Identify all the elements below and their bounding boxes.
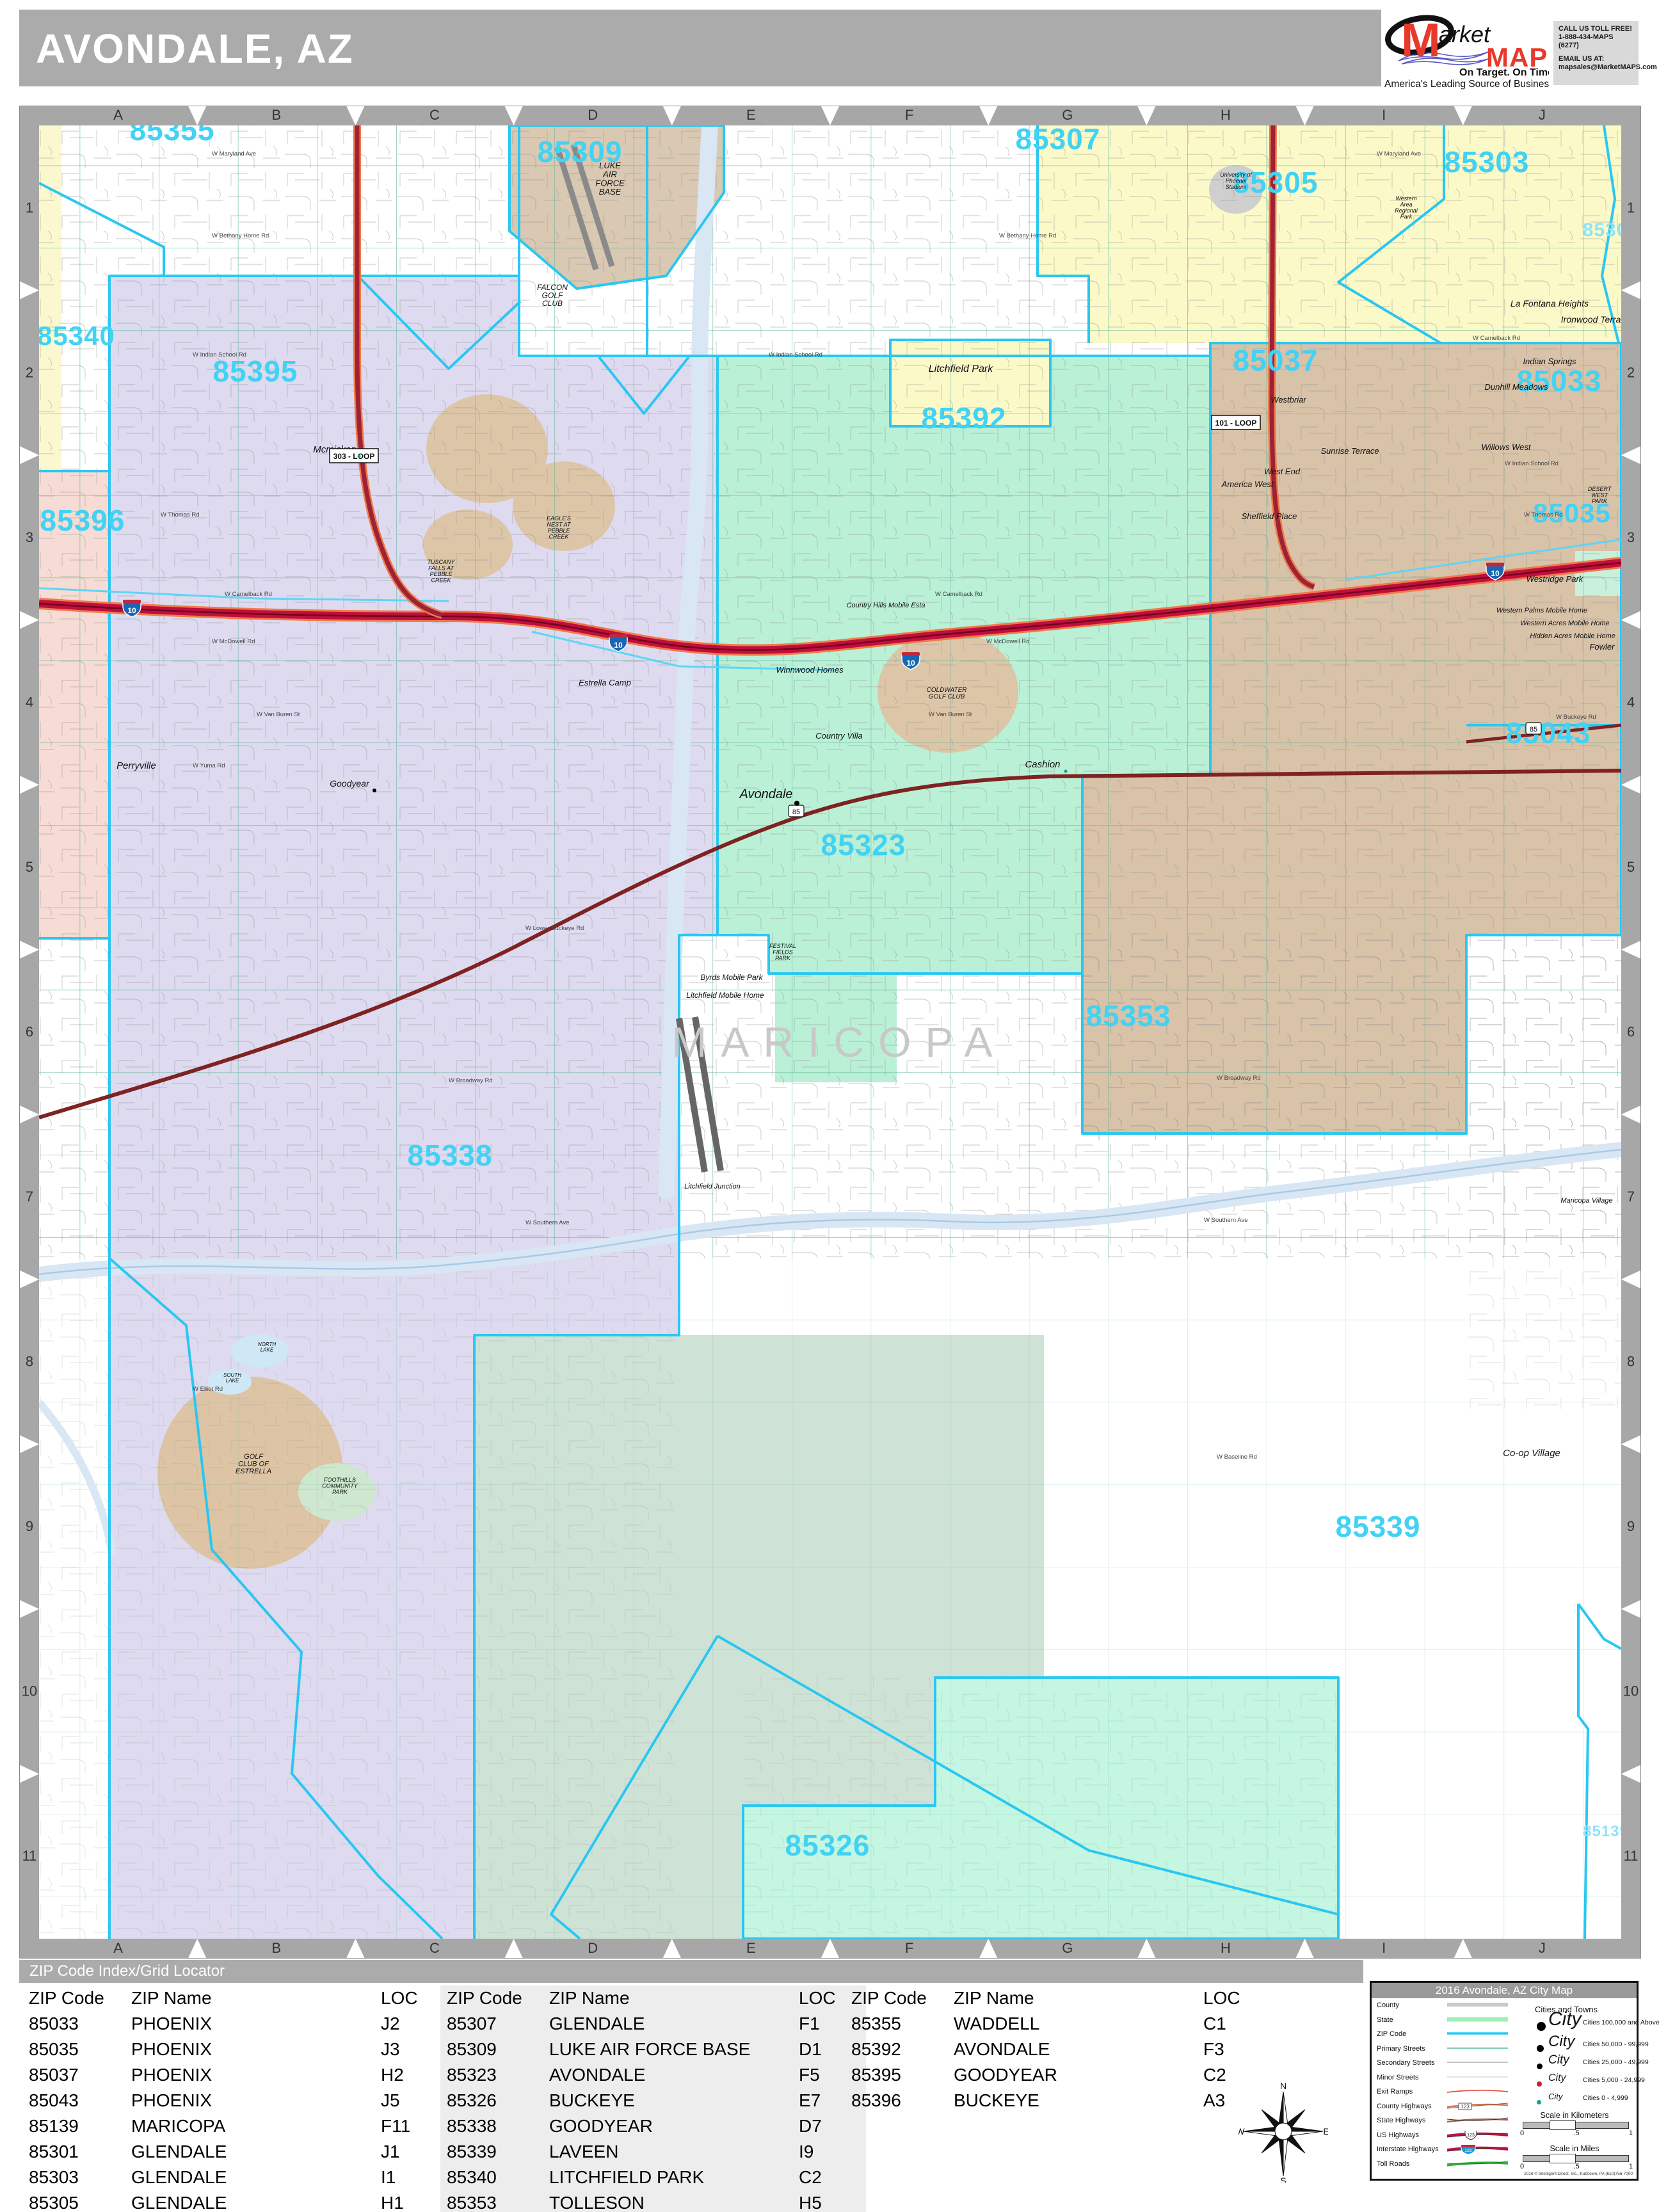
zip-table-cell-code: 85340: [447, 2165, 549, 2190]
contact-line2: 1-888-434-MAPS (6277): [1559, 33, 1633, 50]
page-title: AVONDALE, AZ: [36, 25, 354, 72]
zip-label-85353: 85353: [1086, 999, 1171, 1032]
place-label: Country Hills Mobile Esta: [847, 602, 926, 609]
city-size-dot: [1537, 2045, 1544, 2052]
city-dot: [794, 801, 799, 806]
place-label: Estrella Camp: [579, 678, 631, 687]
zip-label-85395: 85395: [213, 355, 298, 388]
place-label: Goodyear: [330, 778, 370, 789]
city-size-desc: Cities 50,000 - 99,999: [1583, 2040, 1649, 2048]
legend-item-minor: Minor Streets: [1377, 2074, 1418, 2081]
road-label: W Camelback Rd: [1473, 335, 1520, 342]
grid-number-right: 10: [1623, 1683, 1639, 1699]
county-label-group: MARICOPA: [671, 1018, 1006, 1066]
road-label: W Buckeye Rd: [1556, 714, 1596, 721]
grid-number-left: 11: [22, 1848, 37, 1864]
grid-number-right: 1: [1627, 200, 1635, 216]
zip-table-header-loc: LOC: [799, 1985, 860, 2011]
zip-table-cell-code: 85339: [447, 2139, 549, 2165]
road-label: W Broadway Rd: [449, 1077, 493, 1084]
grid-letter: E: [746, 1940, 756, 1956]
road-label: W Southern Ave: [1204, 1217, 1247, 1224]
zip-table-cell-loc: H2: [381, 2062, 442, 2088]
scale-bar: [1523, 2122, 1629, 2129]
road-label: W Maryland Ave: [212, 150, 256, 157]
legend-item-sthwy: State Highways: [1377, 2117, 1425, 2124]
city-size-desc: Cities 100,000 and Above: [1583, 2019, 1659, 2026]
zip-table-cell-code: 85392: [851, 2037, 954, 2062]
zip-table-cell-code: 85033: [29, 2011, 131, 2037]
grid-number-left: 6: [26, 1024, 33, 1040]
zip-label-85340: 85340: [37, 321, 115, 351]
svg-text:123: 123: [1465, 2149, 1472, 2153]
place-label: Indian Springs: [1523, 357, 1576, 366]
logo-arket: arket: [1439, 21, 1491, 47]
svg-text:10: 10: [1491, 569, 1500, 578]
grid-number-left: 9: [26, 1518, 33, 1534]
zip-table-cell-name: GOODYEAR: [954, 2062, 1203, 2088]
zip-table-cell-code: 85353: [447, 2190, 549, 2212]
grid-letter: F: [905, 107, 913, 123]
scale-ticks: 0.51: [1520, 2163, 1633, 2170]
zip-table-header-zip-code: ZIP Code: [29, 1985, 131, 2011]
zip-table-group-3: ZIP CodeZIP NameLOC85355WADDELLC185392AV…: [851, 1985, 1264, 2113]
zip-table-cell-name: PHOENIX: [131, 2011, 381, 2037]
contact-line4: mapsales@MarketMAPS.com: [1559, 63, 1633, 72]
county-label: MARICOPA: [671, 1018, 1006, 1066]
road-label: W Van Buren St: [257, 711, 300, 718]
place-label: Ironwood Terrace: [1561, 314, 1631, 325]
zip-table-cell-name: WADDELL: [954, 2011, 1203, 2037]
road-label: W McDowell Rd: [986, 638, 1030, 645]
legend-item-exit: Exit Ramps: [1377, 2088, 1413, 2096]
place-label: SOUTHLAKE: [223, 1372, 241, 1383]
contact-line1: CALL US TOLL FREE!: [1559, 25, 1633, 33]
zip-table-header-zip-name: ZIP Name: [549, 1985, 799, 2011]
zip-table-cell-name: TOLLESON: [549, 2190, 799, 2212]
legend-item-zip: ZIP Code: [1377, 2030, 1406, 2038]
legend-item-ushwy: US Highways: [1377, 2131, 1419, 2139]
svg-text:10: 10: [906, 659, 915, 668]
zip-table-cell-name: BUCKEYE: [549, 2088, 799, 2113]
zip-table-header-zip-code: ZIP Code: [851, 1985, 954, 2011]
grid-number-right: 4: [1627, 694, 1635, 710]
contact-line3: EMAIL US AT:: [1559, 55, 1633, 63]
zip-table-cell-loc: J3: [381, 2037, 442, 2062]
grid-number-right: 3: [1627, 529, 1635, 545]
place-label: Co-op Village: [1503, 1448, 1560, 1459]
compass-w: W: [1238, 2126, 1245, 2136]
place-label: Country Villa: [815, 731, 862, 741]
scale-bar: [1523, 2155, 1629, 2162]
zip-label-85323: 85323: [821, 828, 906, 862]
road-label: W Maryland Ave: [1377, 150, 1421, 157]
place-label: Dunhill Meadows: [1485, 382, 1548, 392]
zip-table-cell-loc: C1: [1203, 2011, 1264, 2037]
zip-table-cell-loc: D1: [799, 2037, 860, 2062]
place-label: Westridge Park: [1527, 574, 1584, 584]
zip-label-85392: 85392: [922, 401, 1007, 435]
place-label: NORTHLAKE: [258, 1342, 276, 1352]
city-size-dot: [1537, 2064, 1543, 2069]
legend-item-county: County: [1377, 2001, 1399, 2009]
grid-letter: B: [271, 107, 281, 123]
svg-text:10: 10: [127, 606, 136, 615]
place-label: Fowler: [1589, 642, 1615, 652]
zip-table-cell-name: PHOENIX: [131, 2062, 381, 2088]
zip-table-cell-code: 85309: [447, 2037, 549, 2062]
index-bar: ZIP Code Index/Grid Locator: [19, 1960, 1363, 1983]
zip-table-cell-loc: F11: [381, 2113, 442, 2139]
city-size-sample: City: [1548, 2072, 1566, 2084]
loop-plate: 101 - LOOP: [1212, 415, 1260, 429]
zip-label-85043: 85043: [1506, 716, 1591, 749]
city-dot: [358, 455, 361, 458]
road-label: W Indian School Rd: [1505, 460, 1559, 467]
logo-graphic: M arket MAPS On Target. On Time. America…: [1382, 6, 1549, 96]
zip-table-cell-loc: J2: [381, 2011, 442, 2037]
place-label: Avondale: [739, 787, 792, 801]
logo-m: M: [1401, 13, 1441, 67]
zip-table-cell-loc: F5: [799, 2062, 860, 2088]
place-label: West End: [1264, 467, 1301, 476]
contact-box: CALL US TOLL FREE! 1-888-434-MAPS (6277)…: [1553, 21, 1639, 85]
zip-table-cell-code: 85303: [29, 2165, 131, 2190]
road-label: W Baseline Rd: [1217, 1454, 1257, 1461]
road-label: W Elliot Rd: [193, 1386, 223, 1393]
grid-letter: C: [429, 107, 440, 123]
place-label: Byrds Mobile Park: [700, 973, 763, 982]
legend-title: 2016 Avondale, AZ City Map: [1372, 1983, 1637, 1998]
zip-table-cell-name: GLENDALE: [131, 2165, 381, 2190]
place-label: Sunrise Terrace: [1320, 446, 1379, 456]
grid-number-right: 9: [1627, 1518, 1635, 1534]
city-size-sample: City: [1548, 2053, 1569, 2067]
legend-copyright: 2016 © Intelligent Direct, Inc., Kutztow…: [1524, 2172, 1633, 2176]
road-label: W Bethany Home Rd: [999, 232, 1056, 239]
city-size-desc: Cities 0 - 4,999: [1583, 2094, 1628, 2102]
zip-table-cell-code: 85338: [447, 2113, 549, 2139]
legend-item-primary: Primary Streets: [1377, 2045, 1425, 2053]
legend-item-toll: Toll Roads: [1377, 2160, 1409, 2168]
place-label: Western Palms Mobile Home: [1496, 607, 1587, 614]
grid-number-left: 7: [26, 1189, 33, 1205]
zip-table-cell-name: GOODYEAR: [549, 2113, 799, 2139]
zip-label-85339: 85339: [1336, 1510, 1421, 1543]
us-85-shield: 85: [1526, 723, 1541, 734]
grid-number-right: 6: [1627, 1024, 1635, 1040]
road-label: W Yuma Rd: [193, 762, 225, 769]
zip-label-85307: 85307: [1016, 122, 1101, 156]
grid-letter: G: [1062, 107, 1073, 123]
zip-table-group-1: ZIP CodeZIP NameLOC85033PHOENIXJ285035PH…: [29, 1985, 442, 2212]
grid-letter: G: [1062, 1940, 1073, 1956]
zip-label-85303: 85303: [1445, 145, 1530, 179]
grid-letter: H: [1221, 1940, 1231, 1956]
city-size-sample: City: [1548, 2033, 1575, 2051]
zip-table-cell-loc: I1: [381, 2165, 442, 2190]
zip-table-cell-code: 85139: [29, 2113, 131, 2139]
grid-letter: D: [588, 1940, 598, 1956]
zip-table-cell-code: 85355: [851, 2011, 954, 2037]
place-label: Maricopa Village: [1560, 1197, 1612, 1205]
zip-table-cell-name: GLENDALE: [549, 2011, 799, 2037]
road-label: W Broadway Rd: [1217, 1075, 1261, 1082]
zip-table-cell-loc: H1: [381, 2190, 442, 2212]
place-label: Western Acres Mobile Home: [1520, 620, 1609, 627]
zip-table-cell-code: 85323: [447, 2062, 549, 2088]
grid-number-left: 3: [26, 529, 33, 545]
road-label: W Indian School Rd: [193, 351, 246, 358]
grid-letter: E: [746, 107, 756, 123]
place-label: Sheffield Place: [1242, 511, 1297, 521]
legend-item-inthwy: Interstate Highways: [1377, 2145, 1439, 2153]
zip-table-cell-loc: D7: [799, 2113, 860, 2139]
legend-box: 2016 Avondale, AZ City Map CountyStateZI…: [1370, 1981, 1639, 2181]
legend-item-secondary: Secondary Streets: [1377, 2059, 1435, 2067]
city-size-desc: Cities 5,000 - 24,999: [1583, 2076, 1645, 2084]
scale-title: Scale in Miles: [1520, 2144, 1629, 2153]
grid-letter: A: [113, 1940, 123, 1956]
zip-table-cell-name: BUCKEYE: [954, 2088, 1203, 2113]
scale-title: Scale in Kilometers: [1520, 2111, 1629, 2120]
city-size-dot: [1537, 2081, 1542, 2087]
svg-text:85: 85: [792, 808, 800, 816]
zip-label-85033: 85033: [1517, 364, 1602, 397]
road-label: W Indian School Rd: [769, 351, 822, 358]
page: { "header": { "title": "AVONDALE, AZ", "…: [0, 0, 1659, 2212]
header-bar: AVONDALE, AZ: [19, 10, 1381, 86]
place-label: Willows West: [1482, 442, 1532, 452]
place-label: LUKEAIRFORCEBASE: [595, 161, 625, 196]
zip-label-85326: 85326: [785, 1829, 870, 1862]
place-label: La Fontana Heights: [1511, 298, 1589, 309]
zip-table-cell-name: AVONDALE: [954, 2037, 1203, 2062]
grid-number-right: 7: [1627, 1189, 1635, 1205]
place-label: America West: [1221, 479, 1274, 489]
zip-table-header-loc: LOC: [1203, 1985, 1264, 2011]
zip-table-group-2: ZIP CodeZIP NameLOC85307GLENDALEF185309L…: [440, 1985, 866, 2212]
zip-label-85037: 85037: [1233, 344, 1318, 377]
logo-tagline: On Target. On Time.: [1459, 67, 1549, 78]
compass-s: S: [1280, 2176, 1286, 2183]
index-bar-title: ZIP Code Index/Grid Locator: [19, 1960, 225, 1983]
loop-plate: 303 - LOOP: [330, 449, 378, 463]
zip-table-cell-name: LITCHFIELD PARK: [549, 2165, 799, 2190]
zip-table-cell-name: GLENDALE: [131, 2190, 381, 2212]
map-area: MARICOPA 8535585309853078530585303853018…: [19, 106, 1641, 1959]
zip-table-cell-code: 85301: [29, 2139, 131, 2165]
grid-number-left: 1: [26, 200, 33, 216]
grid-number-left: 10: [22, 1683, 37, 1699]
legend-item-state: State: [1377, 2016, 1393, 2024]
compass-rose: N E S W: [1238, 2080, 1328, 2183]
place-label: Litchfield Mobile Home: [686, 991, 764, 1000]
marketmaps-logo: M arket MAPS On Target. On Time. America…: [1382, 6, 1549, 96]
grid-number-right: 8: [1627, 1354, 1635, 1370]
road-label: W Southern Ave: [525, 1219, 569, 1226]
svg-text:10: 10: [614, 641, 623, 650]
grid-letter: I: [1382, 1940, 1386, 1956]
grid-letter: I: [1382, 107, 1386, 123]
place-label: Westbriar: [1270, 395, 1306, 405]
grid-letter: B: [271, 1940, 281, 1956]
svg-text:101 - LOOP: 101 - LOOP: [1215, 419, 1257, 428]
zip-label-85338: 85338: [408, 1139, 493, 1172]
zip-table-cell-name: PHOENIX: [131, 2088, 381, 2113]
zip-table-cell-name: GLENDALE: [131, 2139, 381, 2165]
zip-table-cell-code: 85037: [29, 2062, 131, 2088]
place-label: Hidden Acres Mobile Home: [1530, 632, 1615, 640]
zip-table-cell-code: 85307: [447, 2011, 549, 2037]
zip-table-cell-code: 85395: [851, 2062, 954, 2088]
zip-table-cell-name: LAVEEN: [549, 2139, 799, 2165]
zip-table-cell-code: 85035: [29, 2037, 131, 2062]
compass-n: N: [1280, 2081, 1286, 2091]
grid-letter: J: [1539, 1940, 1546, 1956]
zip-table-cell-loc: F1: [799, 2011, 860, 2037]
zip-table-header-zip-name: ZIP Name: [954, 1985, 1203, 2011]
zip-table-cell-loc: E7: [799, 2088, 860, 2113]
city-size-sample: City: [1548, 2092, 1562, 2101]
road-label: W Van Buren St: [929, 711, 972, 718]
svg-text:303 - LOOP: 303 - LOOP: [333, 452, 375, 461]
svg-text:85: 85: [1530, 726, 1537, 733]
logo-subline: America's Leading Source of Business Map…: [1384, 79, 1549, 90]
place-label: Litchfield Junction: [684, 1183, 740, 1190]
road-label: W Bethany Home Rd: [212, 232, 269, 239]
svg-text:123: 123: [1461, 2104, 1470, 2110]
zip-table-cell-name: MARICOPA: [131, 2113, 381, 2139]
grid-letter: D: [588, 107, 598, 123]
zip-table-cell-code: 85043: [29, 2088, 131, 2113]
grid-letter: C: [429, 1940, 440, 1956]
zip-table-cell-name: LUKE AIR FORCE BASE: [549, 2037, 799, 2062]
zip-table-cell-code: 85326: [447, 2088, 549, 2113]
zip-table-cell-code: 85396: [851, 2088, 954, 2113]
scale-ticks: 0.51: [1520, 2129, 1633, 2137]
grid-number-right: 2: [1627, 364, 1635, 380]
grid-letter: F: [905, 1940, 913, 1956]
place-label: Winnwood Homes: [776, 665, 844, 675]
place-label: Perryville: [116, 760, 156, 771]
zip-table-header-loc: LOC: [381, 1985, 442, 2011]
zip-table-header-zip-name: ZIP Name: [131, 1985, 381, 2011]
zip-table-cell-loc: H5: [799, 2190, 860, 2212]
city-size-desc: Cities 25,000 - 49,999: [1583, 2058, 1649, 2066]
road-label: W Camelback Rd: [225, 591, 272, 598]
grid-letter: H: [1221, 107, 1231, 123]
grid-number-left: 2: [26, 364, 33, 380]
city-dot: [373, 789, 376, 792]
place-label: Litchfield Park: [929, 364, 993, 374]
place-label: Cashion: [1025, 759, 1060, 770]
grid-number-right: 5: [1627, 859, 1635, 875]
road-label: W Thomas Rd: [161, 511, 200, 518]
svg-text:123: 123: [1467, 2133, 1475, 2138]
city-dot: [1064, 770, 1068, 773]
grid-letter: J: [1539, 107, 1546, 123]
zip-label-85396: 85396: [40, 504, 125, 537]
road-label: W McDowell Rd: [212, 638, 255, 645]
zip-table-cell-name: AVONDALE: [549, 2062, 799, 2088]
grid-number-left: 4: [26, 694, 33, 710]
city-size-dot: [1537, 2100, 1541, 2104]
map-svg: MARICOPA 8535585309853078530585303853018…: [20, 106, 1640, 1958]
zip-table-header-zip-code: ZIP Code: [447, 1985, 549, 2011]
zip-table-cell-loc: I9: [799, 2139, 860, 2165]
city-size-sample: City: [1548, 2008, 1582, 2030]
zip-table-cell-loc: C2: [799, 2165, 860, 2190]
place-label: EAGLE'SNEST ATPEBBLECREEK: [547, 515, 572, 540]
zip-table-cell-loc: J1: [381, 2139, 442, 2165]
road-label: W Thomas Rd: [1524, 511, 1563, 518]
compass-e: E: [1323, 2126, 1328, 2136]
grid-letter: A: [113, 107, 123, 123]
grid-number-left: 5: [26, 859, 33, 875]
road-label: W Lower Buckeye Rd: [525, 925, 584, 932]
us-85-shield: 85: [789, 805, 804, 817]
city-size-dot: [1537, 2022, 1546, 2031]
grid-number-right: 11: [1624, 1848, 1639, 1864]
legend-item-cohwy: County Highways: [1377, 2103, 1432, 2110]
zip-table-cell-code: 85305: [29, 2190, 131, 2212]
zip-table-cell-name: PHOENIX: [131, 2037, 381, 2062]
grid-number-left: 8: [26, 1354, 33, 1370]
zip-table-cell-loc: F3: [1203, 2037, 1264, 2062]
zip-table-cell-loc: J5: [381, 2088, 442, 2113]
road-label: W Camelback Rd: [935, 591, 982, 598]
place-label: COLDWATERGOLF CLUB: [927, 687, 967, 701]
